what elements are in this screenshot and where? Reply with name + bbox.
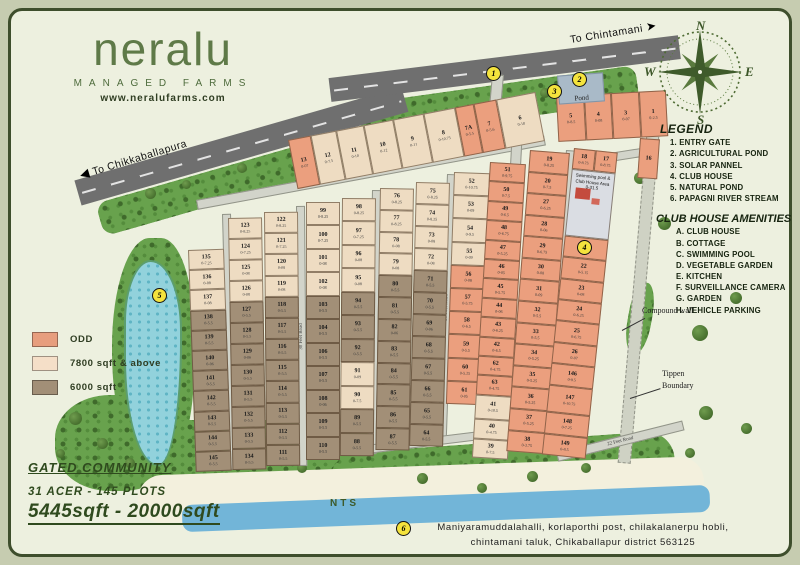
plot-48: 480-6.75 <box>485 220 522 242</box>
plot-acreage: 0-5.5 <box>533 314 542 319</box>
road-label: 30 Feet Road <box>299 323 304 350</box>
plot-acreage: 0-11 <box>410 142 418 147</box>
plot-acreage: 0-10.75 <box>563 401 576 406</box>
list-item: D. VEGETABLE GARDEN <box>676 261 794 270</box>
plot-144: 1440-5.5 <box>194 430 231 451</box>
plot-acreage: 0-5.5 <box>244 419 252 423</box>
plot-acreage: 0-5.5 <box>389 419 397 423</box>
tree-icon <box>741 423 752 434</box>
plot-acreage: 0-4.75 <box>486 431 497 436</box>
plot-acreage: 0-06 <box>319 403 326 407</box>
plot-136: 1360-08 <box>189 269 226 290</box>
plot-53: 530-09 <box>452 195 489 219</box>
tree-icon <box>237 163 247 173</box>
plot-acreage: 0-08 <box>243 293 250 297</box>
plot-acreage: 0-06 <box>391 332 398 336</box>
plot-acreage: 0-06 <box>540 228 548 233</box>
plot-acreage: 0-5.5 <box>462 348 470 352</box>
plot-52: 520-10.75 <box>453 172 490 196</box>
plot-125: 1250-08 <box>229 259 263 281</box>
plot-number: 71 <box>427 276 433 282</box>
plot-64: 640-5.5 <box>409 424 444 447</box>
marker-6: 6 <box>396 521 411 536</box>
plot-number: 68 <box>426 342 432 348</box>
plot-acreage: 0-8.75 <box>578 161 589 166</box>
plot-acreage: 0-5.5 <box>389 375 397 379</box>
plot-number: 59 <box>463 341 469 347</box>
plot-acreage: 0-5.5 <box>278 309 286 313</box>
plot-acreage: 0-08 <box>392 266 399 270</box>
plot-acreage: 0-08 <box>278 266 285 270</box>
plot-acreage: 0-5.5 <box>465 131 474 137</box>
compass-west: W <box>644 64 656 80</box>
plot-acreage: 0-09 <box>535 293 543 298</box>
plot-acreage: 0-5.5 <box>531 336 540 341</box>
plot-acreage: 0-7.5 <box>486 450 495 455</box>
plot-acreage: 0-7.25 <box>240 251 250 255</box>
plot-acreage: 0-7.25 <box>201 261 211 265</box>
plot-acreage: 0-5.25 <box>497 251 508 256</box>
plot-41: 410-10.5 <box>474 394 511 421</box>
compass-east: E <box>745 64 754 80</box>
plot-acreage: 0-09 <box>465 255 472 259</box>
tree-icon <box>527 471 538 482</box>
plot-acreage: 0-05 <box>460 394 467 398</box>
plot-54: 540-9.5 <box>452 218 489 242</box>
plot-acreage: 0-08 <box>428 239 435 243</box>
plot-acreage: 0-5.5 <box>354 305 362 309</box>
plot-39: 390-7.5 <box>472 438 509 460</box>
plot-30: 300-08 <box>520 258 562 283</box>
agricultural-pond-label: Pond <box>574 93 589 102</box>
plot-acreage: 0-7.5 <box>324 158 333 164</box>
plot-acreage: 0-5.5 <box>245 461 253 465</box>
plot-90: 900-7.5 <box>340 386 374 410</box>
size-label: 6000 sqft <box>70 382 117 393</box>
amenities-list: A. CLUB HOUSEB. COTTAGEC. SWIMMING POOLD… <box>660 227 794 314</box>
plot-102: 1020-08 <box>306 272 340 295</box>
plot-109: 1090-5.5 <box>306 413 340 436</box>
size-swatch-icon <box>32 356 58 371</box>
plot-40: 400-4.75 <box>473 419 510 441</box>
tree-icon <box>182 180 191 189</box>
tree-icon <box>581 463 591 473</box>
plot-acreage: 0-10.75 <box>465 185 477 189</box>
plot-acreage: 0-6.5 <box>501 213 510 218</box>
plot-acreage: 0-5.5 <box>279 414 287 418</box>
plot-number: 67 <box>425 364 431 370</box>
plot-acreage: 0-5.5 <box>205 342 213 346</box>
plot-94: 940-5.5 <box>341 292 375 316</box>
plot-number: 75 <box>430 188 436 194</box>
plot-acreage: 0-05 <box>497 271 505 275</box>
plot-number: 140 <box>205 355 214 361</box>
plot-127: 1270-5.5 <box>229 301 263 323</box>
plot-number: 5 <box>569 113 572 119</box>
plot-acreage: 0-5.5 <box>354 329 362 333</box>
plot-acreage: 0-8.5 <box>567 120 576 124</box>
plot-20: 200-7.5 <box>527 172 569 197</box>
plot-acreage: 0-6.75 <box>571 334 582 339</box>
plot-95: 950-08 <box>341 268 375 292</box>
plot-acreage: 0-4.75 <box>489 387 500 392</box>
plot-16: 16 <box>637 138 660 179</box>
plot-acreage: 0-5.5 <box>353 446 361 450</box>
plot-acreage: 0-5.5 <box>319 426 327 430</box>
plot-column: 990-8.251000-7.251010-081020-081030-5.51… <box>306 202 340 460</box>
plot-120: 1200-08 <box>264 254 298 275</box>
plot-acreage: 0-5.5 <box>279 436 287 440</box>
plot-acreage: 0-06 <box>495 310 503 314</box>
marker-4: 4 <box>577 240 592 255</box>
plot-number: 112 <box>279 429 288 435</box>
compass-icon <box>650 22 750 122</box>
brand-name: neralu <box>48 26 278 72</box>
plot-104: 1040-5.5 <box>306 319 340 342</box>
summary-panel: GATED COMMUNITY 31 ACER - 145 PLOTS 5445… <box>28 460 220 525</box>
plot-number: 86 <box>390 412 396 418</box>
plot-acreage: 0-5.5 <box>206 382 214 386</box>
plot-35: 350-5.25 <box>511 365 553 390</box>
plot-100: 1000-7.25 <box>306 225 340 248</box>
plot-acreage: 0-7.25 <box>561 426 572 431</box>
plot-acreage: 0-5.5 <box>319 356 327 360</box>
plot-116: 1160-5.5 <box>265 339 299 360</box>
plot-126: 1260-08 <box>229 280 263 302</box>
plot-acreage: 0-5.5 <box>423 415 431 419</box>
plot-number: 90 <box>354 392 360 398</box>
plot-86: 860-5.5 <box>376 406 410 428</box>
nts-label: NTS <box>330 498 359 509</box>
plot-87: 870-5.5 <box>375 428 409 450</box>
plot-123: 1230-8.25 <box>228 217 262 239</box>
plot-number: 74 <box>429 210 435 216</box>
plot-68: 680-5.5 <box>411 336 446 359</box>
plot-91: 910-09 <box>340 362 374 386</box>
plot-acreage: 0-5.5 <box>388 441 396 445</box>
tree-icon <box>145 188 156 199</box>
club-house-area: Swimming pool &Club House Area0-31.5 <box>565 169 616 239</box>
size-swatch-icon <box>32 380 58 395</box>
plot-acreage: 0-9.75 <box>502 174 513 179</box>
plot-31: 310-09 <box>518 279 560 304</box>
plot-97: 970-7.25 <box>342 221 376 245</box>
plot-acreage: 0-08 <box>355 282 362 286</box>
tree-icon <box>417 473 428 484</box>
plots-stats-label: 31 ACER - 145 PLOTS <box>28 486 220 498</box>
plot-44: 440-06 <box>481 297 518 319</box>
plot-acreage: 0-07 <box>570 356 578 361</box>
plot-110: 1100-5.5 <box>306 437 340 460</box>
plot-acreage: 0-7.5 <box>353 399 361 403</box>
plot-acreage: 0-6.5 <box>462 325 470 329</box>
plot-29: 290-6.75 <box>522 236 564 261</box>
plot-acreage: 0-4.75 <box>490 367 501 372</box>
plot-acreage: 0-08 <box>427 261 434 265</box>
plot-acreage: 0-8.25 <box>276 224 286 228</box>
list-item: 2. AGRICULTURAL POND <box>670 149 794 158</box>
plot-62: 620-4.75 <box>477 356 514 378</box>
size-legend-row: 6000 sqft <box>32 380 161 395</box>
club-building-icon <box>575 188 591 201</box>
plot-column: 760-8.25770-8.25780-08790-08800-5.5810-5… <box>375 188 414 451</box>
plot-acreage: 0-08 <box>464 278 471 282</box>
plot-43: 430-6.25 <box>479 317 516 339</box>
plot-133: 1330-5.5 <box>232 427 266 449</box>
list-item: 1. ENTRY GATE <box>670 138 794 147</box>
plot-67: 670-5.5 <box>411 358 446 381</box>
plot-acreage: 0-8.25 <box>427 217 437 221</box>
plot-acreage: 0-8.5 <box>567 377 576 382</box>
plot-acreage: 0-5.5 <box>424 349 432 353</box>
plot-acreage: 0-5.5 <box>278 351 286 355</box>
plot-acreage: 0-5.5 <box>426 283 434 287</box>
plot-number: 60 <box>462 364 468 370</box>
size-legend: ODD7800 sqft & above6000 sqft <box>32 332 161 404</box>
list-item: C. SWIMMING POOL <box>676 250 794 259</box>
site-map-page: To Chintamani ➤ ◀ To Chikkaballapura Pon… <box>0 0 800 565</box>
plot-acreage: 0-12 <box>380 148 388 153</box>
plot-acreage: 0-08 <box>355 258 362 262</box>
plot-acreage: 0-5.5 <box>244 398 252 402</box>
plot-acreage: 0-5.5 <box>243 335 251 339</box>
plot-acreage: 0-5.5 <box>208 422 216 426</box>
list-item: 5. NATURAL POND <box>670 183 794 192</box>
compass-north: N <box>696 18 705 34</box>
plot-acreage: 0-08 <box>319 286 326 290</box>
marker-3: 3 <box>547 84 562 99</box>
plot-135: 1350-7.25 <box>188 249 225 270</box>
plot-114: 1140-5.5 <box>265 381 299 402</box>
cottage-building-icon <box>591 199 600 206</box>
plot-106: 1060-5.5 <box>306 343 340 366</box>
plot-83: 830-5.5 <box>377 341 411 363</box>
plot-number: 3 <box>624 110 627 116</box>
plot-acreage: 0-7.25 <box>353 235 363 239</box>
plot-number: 88 <box>354 439 360 445</box>
plot-121: 1210-7.25 <box>264 233 298 254</box>
plot-149: 1490-8.5 <box>542 433 588 459</box>
plot-131: 1310-5.5 <box>231 385 265 407</box>
plot-number: 81 <box>392 303 398 309</box>
plot-acreage: 0-5.6 <box>486 127 495 133</box>
plot-acreage: 0-6.75 <box>498 232 509 237</box>
plot-acreage: 0-5.25 <box>528 357 539 362</box>
plot-acreage: 0-5.25 <box>527 379 538 384</box>
plot-80: 800-5.5 <box>378 275 412 297</box>
plot-acreage: 0-5.5 <box>243 314 251 318</box>
plot-111: 1110-5.5 <box>266 445 300 466</box>
plot-82: 820-06 <box>377 319 411 341</box>
plot-36: 360-5.25 <box>510 387 552 412</box>
plot-column: 1220-8.251210-7.251200-081190-081180-5.5… <box>264 212 300 466</box>
plot-18: 180-8.75 <box>572 148 596 172</box>
marker-5: 5 <box>152 288 167 303</box>
plot-acreage: 0-8.25 <box>392 201 402 205</box>
plot-acreage: 0-5.5 <box>209 442 217 446</box>
plot-number: 80 <box>392 281 398 287</box>
plot-47: 470-5.25 <box>484 239 521 261</box>
plot-130: 1300-5.5 <box>231 364 265 386</box>
plot-51: 510-9.75 <box>489 162 526 184</box>
plot-139: 1390-5.5 <box>191 329 228 350</box>
plot-55: 550-09 <box>451 242 488 266</box>
plot-acreage: 0-8.25 <box>318 215 328 219</box>
plot-acreage: 0-8.25 <box>240 230 250 234</box>
plot-acreage: 0-7.5 <box>502 193 511 198</box>
list-item: F. SURVEILLANCE CAMERA <box>676 283 794 292</box>
plot-115: 1150-5.5 <box>265 360 299 381</box>
plot-acreage: 0-08 <box>392 244 399 248</box>
plot-119: 1190-08 <box>265 275 299 296</box>
plot-acreage: 0-08 <box>204 301 211 305</box>
plot-number: 69 <box>426 320 432 326</box>
plot-column: 980-8.25970-7.25960-08950-08940-5.5930-5… <box>340 198 376 456</box>
plot-acreage: 0-5.5 <box>422 437 430 441</box>
plot-number: 45 <box>497 283 503 289</box>
plot-number: 102 <box>319 279 328 285</box>
plot-acreage: 0-7.5 <box>543 185 552 190</box>
plot-141: 1410-5.5 <box>192 370 229 391</box>
list-item: H. VEHICLE PARKING <box>676 306 794 315</box>
plot-number: 113 <box>278 407 287 413</box>
plot-number: 87 <box>390 434 396 440</box>
plot-85: 850-5.5 <box>376 384 410 406</box>
list-item: B. COTTAGE <box>676 239 794 248</box>
plot-acreage: 0-5.5 <box>426 305 434 309</box>
brand-website: www.neralufarms.com <box>48 93 278 104</box>
plot-acreage: 0-08 <box>203 281 210 285</box>
plot-acreage: 0-5.5 <box>244 377 252 381</box>
plot-140: 1400-06 <box>192 350 229 371</box>
plot-acreage: 0-5.5 <box>278 393 286 397</box>
plot-19: 190-8.25 <box>528 150 570 175</box>
plot-acreage: 0-5.5 <box>391 288 399 292</box>
plot-92: 920-5.5 <box>341 339 375 363</box>
plot-74: 740-8.25 <box>415 204 450 227</box>
list-item: 3. SOLAR PANNEL <box>670 161 794 170</box>
address-line-1: Maniyaramuddalahalli, korlaporthi post, … <box>378 521 788 536</box>
plot-acreage: 0-06 <box>206 362 213 366</box>
plot-number: 118 <box>277 302 286 308</box>
plot-acreage: 0-10.5 <box>488 409 499 414</box>
plot-acreage: 0-8.75 <box>600 163 611 168</box>
plot-acreage: 0-10.75 <box>438 135 451 141</box>
plot-84: 840-5.5 <box>377 363 411 385</box>
plot-number: 100 <box>319 232 328 238</box>
plot-acreage: 0-5.5 <box>353 352 361 356</box>
plot-63: 630-4.75 <box>476 375 513 397</box>
plot-acreage: 0-5.5 <box>319 332 327 336</box>
address-line-2: chintamani taluk, Chikaballapur district… <box>378 536 788 551</box>
plot-134: 1340-5.5 <box>232 448 266 470</box>
plot-acreage: 0-6.25 <box>573 313 584 318</box>
compound-wall-label: Compound wall <box>642 306 693 315</box>
plot-acreage: 0-06 <box>244 356 251 360</box>
plot-acreage: 0-5.75 <box>495 290 506 295</box>
plot-number: 97 <box>356 228 362 234</box>
plot-45: 450-5.75 <box>482 278 519 300</box>
plot-acreage: 0-5.25 <box>460 371 470 375</box>
plot-137: 1370-08 <box>189 289 226 310</box>
plot-117: 1170-5.5 <box>265 318 299 339</box>
plot-113: 1130-5.5 <box>266 402 300 423</box>
plot-number: 135 <box>202 254 211 260</box>
marker-2: 2 <box>572 72 587 87</box>
plot-69: 690-06 <box>412 314 447 337</box>
brand-logo: neralu MANAGED FARMS www.neralufarms.com <box>48 26 278 104</box>
plot-number: 119 <box>277 280 286 286</box>
plot-50: 500-7.5 <box>488 181 525 203</box>
plot-65: 650-5.5 <box>410 402 445 425</box>
plot-number: 4 <box>597 111 600 117</box>
plot-acreage: 0-8.5 <box>560 447 569 452</box>
gated-community-label: GATED COMMUNITY <box>28 460 220 475</box>
plot-acreage: 0-5.5 <box>319 450 327 454</box>
size-label: ODD <box>70 334 93 345</box>
plot-129: 1290-06 <box>230 343 264 365</box>
plot-142: 1420-5.5 <box>193 390 230 411</box>
size-range-label: 5445sqft - 20000sqft <box>28 501 220 525</box>
marker-1: 1 <box>486 66 501 81</box>
plot-28: 280-06 <box>523 215 565 240</box>
plot-number: 110 <box>319 443 328 449</box>
plot-42: 420-6.5 <box>478 336 515 358</box>
plot-acreage: 0-8.25 <box>427 195 437 199</box>
tree-icon <box>685 448 695 458</box>
plot-acreage: 0-6.25 <box>540 206 551 211</box>
plot-128: 1280-5.5 <box>230 322 264 344</box>
plot-33: 330-5.5 <box>515 322 557 347</box>
plot-acreage: 0-8.25 <box>544 163 555 168</box>
plot-acreage: 0-5.5 <box>278 372 286 376</box>
plot-acreage: 0-7.25 <box>276 245 286 249</box>
plot-34: 340-5.25 <box>513 344 555 369</box>
plot-acreage: 0-08 <box>319 262 326 266</box>
tippen-boundary-label: Tippen Boundary <box>662 368 716 392</box>
plot-108: 1080-06 <box>306 390 340 413</box>
plot-column: 16 <box>637 138 660 179</box>
plot-acreage: 0-5.5 <box>319 379 327 383</box>
plot-acreage: 0-5.5 <box>423 393 431 397</box>
plot-3: 30-07 <box>611 92 641 139</box>
plot-77: 770-8.25 <box>379 210 413 232</box>
plot-acreage: 0-06 <box>425 327 432 331</box>
plot-37: 370-5.25 <box>508 408 550 433</box>
tree-icon <box>97 438 108 449</box>
plot-acreage: 0-6.25 <box>492 329 503 334</box>
plot-46: 460-05 <box>483 259 520 281</box>
plot-column: 750-8.25740-8.25730-08720-08710-5.5700-5… <box>409 182 450 447</box>
plot-66: 660-5.5 <box>410 380 445 403</box>
plot-98: 980-8.25 <box>342 198 376 222</box>
list-item: G. GARDEN <box>676 294 794 303</box>
plot-number: 50 <box>503 186 509 192</box>
plot-132: 1320-5.5 <box>231 406 265 428</box>
list-item: 6. PAPAGNI RIVER STREAM <box>670 194 794 203</box>
plot-acreage: 0-6.75 <box>537 249 548 254</box>
plot-124: 1240-7.25 <box>228 238 262 260</box>
plot-acreage: 0-5.5 <box>319 309 327 313</box>
plot-75: 750-8.25 <box>415 182 450 205</box>
tree-icon <box>69 412 82 425</box>
plot-acreage: 0-18 <box>517 121 525 126</box>
plot-acreage: 0-07 <box>301 163 309 168</box>
plot-71: 710-5.5 <box>413 270 448 293</box>
plot-acreage: 0-8.25 <box>391 222 401 226</box>
size-label: 7800 sqft & above <box>70 358 161 369</box>
plot-number: 66 <box>425 386 431 392</box>
